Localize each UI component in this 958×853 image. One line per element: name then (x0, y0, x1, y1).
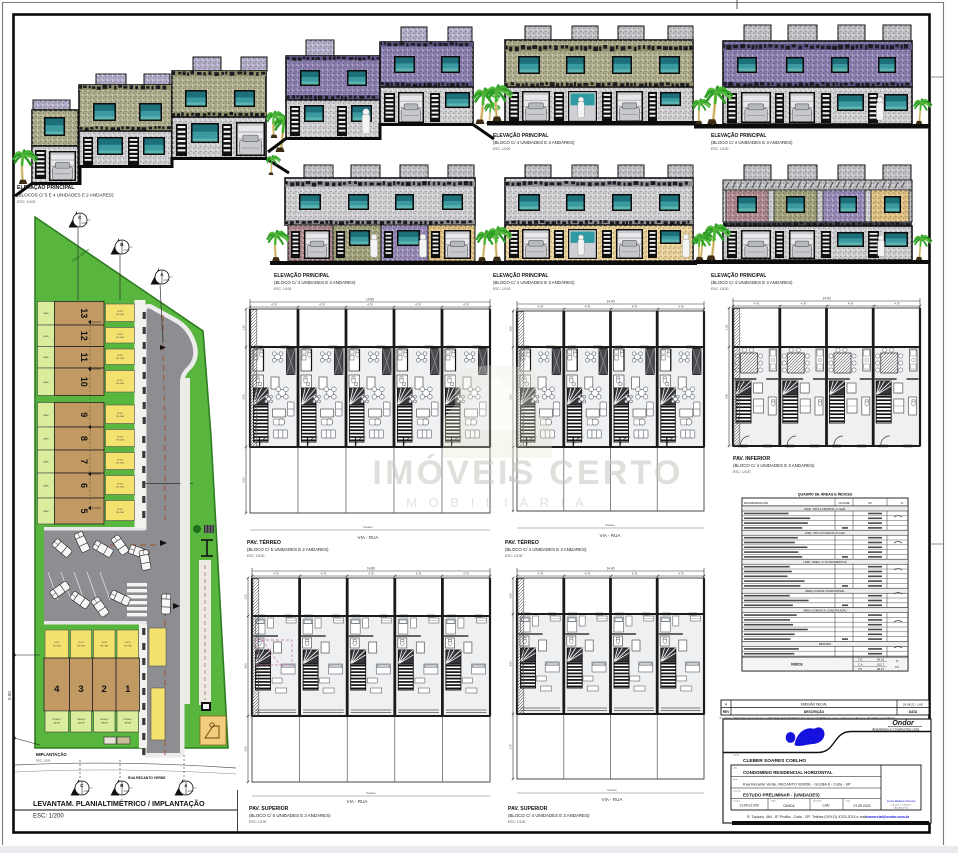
svg-text:1/100: 1/100 (123, 249, 130, 252)
svg-text:SUÍTE: SUÍTE (117, 459, 124, 462)
svg-text:REV: REV (723, 710, 730, 714)
svg-text:EM CIMA: EM CIMA (116, 313, 124, 316)
svg-text:R. Topázio, 464 - B° Profita -: R. Topázio, 464 - B° Profita - Cotia - S… (747, 815, 866, 819)
svg-text:11: 11 (79, 352, 89, 362)
svg-text:TERRAÇO: TERRAÇO (52, 718, 61, 721)
svg-text:EMISSÃO INICIAL: EMISSÃO INICIAL (801, 702, 828, 707)
svg-text:ELEVAÇÃO PRINCIPAL: ELEVAÇÃO PRINCIPAL (274, 272, 329, 279)
svg-text:UNID. TIPO A FRONTAL C/ GAR.: UNID. TIPO A FRONTAL C/ GAR. (804, 507, 846, 511)
svg-text:14.40: 14.40 (823, 297, 831, 301)
svg-text:8: 8 (79, 436, 89, 441)
svg-text:LEVANTAM. PLANIALTIMÉTRICO / I: LEVANTAM. PLANIALTIMÉTRICO / IMPLANTAÇÃO (33, 799, 205, 808)
svg-text:3.00: 3.00 (725, 393, 729, 399)
svg-text:cliente: cliente (733, 754, 740, 757)
svg-text:escalas: escalas (733, 801, 741, 803)
svg-text:TERRAÇO: TERRAÇO (123, 718, 132, 721)
svg-text:comercial@ondor.com.br: comercial@ondor.com.br (866, 815, 910, 819)
svg-text:ÁREA: ÁREA (44, 438, 50, 441)
svg-text:4.70: 4.70 (848, 302, 854, 306)
svg-text:ESC: 1/200: ESC: 1/200 (33, 814, 64, 820)
svg-text:ÁREA COMUM CONDOMINIAL: ÁREA COMUM CONDOMINIAL (805, 589, 845, 593)
svg-text:14.40: 14.40 (607, 300, 615, 304)
svg-text:(BLOCOS C/ 5 E 4 UNIDADES E 2: (BLOCOS C/ 5 E 4 UNIDADES E 2 ANDARES) (17, 193, 114, 198)
svg-text:ÁREA: ÁREA (44, 381, 50, 384)
svg-text:EM CIMA: EM CIMA (100, 645, 108, 648)
svg-text:EM CIMA: EM CIMA (116, 439, 124, 442)
svg-text:26.08.22 - LAD: 26.08.22 - LAD (903, 703, 924, 707)
svg-text:4.70: 4.70 (632, 572, 638, 576)
svg-text:4.70: 4.70 (632, 305, 638, 309)
svg-text:ÍNDICE: ÍNDICE (791, 662, 803, 667)
svg-text:ÁREA: ÁREA (44, 485, 50, 488)
svg-text:VIA - RUA: VIA - RUA (358, 535, 380, 540)
svg-text:TERRAÇO: TERRAÇO (77, 718, 86, 721)
svg-text:4.70: 4.70 (321, 572, 327, 576)
svg-text:1.18: 1.18 (725, 324, 729, 330)
svg-text:EM CIMA: EM CIMA (116, 336, 124, 339)
svg-text:JARDIM: JARDIM (78, 722, 85, 725)
svg-text:6: 6 (79, 483, 89, 488)
svg-text:PAV. TÉRREO: PAV. TÉRREO (247, 538, 281, 546)
svg-text:VIA - RUA: VIA - RUA (600, 533, 622, 538)
svg-text:4.70: 4.70 (585, 572, 591, 576)
svg-text:local: local (733, 779, 738, 781)
svg-text:CLEBER SOARES COELHO: CLEBER SOARES COELHO (743, 758, 806, 764)
svg-text:EM CIMA: EM CIMA (116, 462, 124, 465)
svg-text:4.70: 4.70 (463, 572, 469, 576)
svg-text:EM CIMA: EM CIMA (124, 645, 132, 648)
svg-text:SUÍTE: SUÍTE (54, 641, 61, 644)
svg-text:4.70: 4.70 (678, 572, 684, 576)
svg-text:desenho: desenho (813, 801, 822, 803)
svg-text:M O B I L I Á R I A: M O B I L I Á R I A (406, 495, 588, 510)
svg-text:1:100 e1:200: 1:100 e1:200 (739, 804, 759, 808)
svg-text:ELEVAÇÃO PRINCIPAL: ELEVAÇÃO PRINCIPAL (711, 132, 766, 139)
svg-text:5.00: 5.00 (7, 691, 12, 700)
svg-text:PAV. SUPERIOR: PAV. SUPERIOR (249, 806, 289, 812)
svg-text:EM CIMA: EM CIMA (116, 486, 124, 489)
svg-text:ESC: 1/100: ESC: 1/100 (493, 147, 510, 151)
svg-text:ESC: 1/100: ESC: 1/100 (247, 554, 264, 558)
svg-text:4.70: 4.70 (585, 305, 591, 309)
svg-text:VIA - RUA: VIA - RUA (347, 799, 369, 804)
svg-text:SUÍTE: SUÍTE (117, 333, 124, 336)
svg-text:CAU A25.373-5: CAU A25.373-5 (893, 807, 909, 810)
svg-text:ESC: 1/100: ESC: 1/100 (274, 287, 291, 291)
svg-text:Passeio: Passeio (607, 788, 617, 792)
svg-text:ELEVAÇÃO PRINCIPAL: ELEVAÇÃO PRINCIPAL (493, 272, 548, 279)
svg-text:SUÍTE: SUÍTE (117, 483, 124, 486)
svg-text:ESC: 1/100: ESC: 1/100 (711, 287, 728, 291)
svg-text:EM CIMA: EM CIMA (116, 415, 124, 418)
svg-text:UNID. TIPO A FUNDOS S/ GAR.: UNID. TIPO A FUNDOS S/ GAR. (805, 531, 846, 535)
svg-text:ESC: 1/100: ESC: 1/100 (17, 200, 35, 204)
svg-text:9: 9 (79, 412, 89, 417)
svg-text:PAV. INFERIOR: PAV. INFERIOR (733, 456, 770, 462)
svg-text:ÁREA COMUM S/ CONSTRUÇÃO: ÁREA COMUM S/ CONSTRUÇÃO (803, 607, 847, 612)
svg-text:2.00: 2.00 (242, 477, 246, 483)
svg-text:4.70: 4.70 (416, 572, 422, 576)
svg-text:1/100: 1/100 (83, 790, 90, 793)
svg-text:M²: M² (868, 501, 871, 505)
svg-text:ESC: 1/100: ESC: 1/100 (493, 287, 510, 291)
svg-text:DATA: DATA (909, 710, 918, 714)
svg-text:1/100: 1/100 (81, 222, 88, 225)
svg-text:54.19: 54.19 (877, 658, 884, 662)
svg-text:4.70: 4.70 (319, 303, 325, 307)
svg-text:ESTUDO PRELIMINAR - (UNIDADES): ESTUDO PRELIMINAR - (UNIDADES) (743, 793, 820, 798)
svg-text:(BLOCO C/ 4 UNIDADES E 3 ANDAR: (BLOCO C/ 4 UNIDADES E 3 ANDARES) (274, 280, 356, 285)
svg-text:VIA - RUA: VIA - RUA (602, 797, 624, 802)
svg-text:2: 2 (102, 684, 107, 695)
svg-text:ELEVAÇÃO PRINCIPAL: ELEVAÇÃO PRINCIPAL (17, 184, 75, 191)
svg-text:28.27: 28.27 (877, 667, 884, 671)
svg-text:3.03: 3.03 (242, 394, 246, 400)
svg-text:ÁREA: ÁREA (44, 414, 50, 417)
svg-text:0.6: 0.6 (895, 665, 899, 669)
svg-text:SUÍTE: SUÍTE (125, 641, 132, 644)
svg-text:07.09.2022: 07.09.2022 (854, 804, 871, 808)
svg-text:3: 3 (78, 684, 83, 695)
svg-text:1.15: 1.15 (244, 594, 248, 600)
svg-text:CLASSE: CLASSE (838, 501, 849, 505)
svg-text:ESC: 1/100: ESC: 1/100 (711, 147, 728, 151)
svg-text:ÚNICA: ÚNICA (783, 803, 795, 808)
svg-text:SUÍTE: SUÍTE (117, 379, 124, 382)
svg-text:(BLOCO C/ 4 UNIDADES E 3 ANDAR: (BLOCO C/ 4 UNIDADES E 3 ANDARES) (508, 813, 590, 818)
svg-text:SUÍTE: SUÍTE (117, 412, 124, 415)
svg-text:JARDIM: JARDIM (101, 722, 108, 725)
svg-text:1.09: 1.09 (509, 326, 513, 332)
svg-text:4.70: 4.70 (538, 305, 544, 309)
svg-text:ÁREA: ÁREA (44, 335, 50, 338)
svg-text:EM CIMA: EM CIMA (116, 357, 124, 360)
svg-text:obra: obra (733, 767, 738, 770)
svg-text:DISCRIMINAÇÃO: DISCRIMINAÇÃO (744, 500, 769, 505)
svg-text:TERRAÇO: TERRAÇO (100, 718, 109, 721)
svg-text:SUÍTE: SUÍTE (117, 310, 124, 313)
svg-text:ESC: 1/100: ESC: 1/100 (249, 820, 266, 824)
svg-text:SUÍTE: SUÍTE (117, 436, 124, 439)
svg-text:4.70: 4.70 (367, 303, 373, 307)
svg-text:2.00: 2.00 (244, 746, 248, 752)
svg-text:(BLOCO C/ 4 UNIDADES E 3 ANDAR: (BLOCO C/ 4 UNIDADES E 3 ANDARES) (711, 140, 793, 145)
svg-text:IMPLANTAÇÃO: IMPLANTAÇÃO (36, 752, 67, 757)
svg-text:12: 12 (79, 331, 89, 341)
svg-text:5: 5 (79, 508, 89, 513)
svg-text:4.70: 4.70 (271, 303, 277, 307)
svg-text:1/100: 1/100 (163, 279, 170, 282)
svg-text:1.97: 1.97 (509, 743, 513, 749)
svg-text:13: 13 (79, 308, 89, 318)
svg-text:EM CIMA: EM CIMA (77, 645, 85, 648)
svg-text:14.80: 14.80 (366, 298, 374, 302)
svg-text:(BLOCO C/ 4 UNIDADES E 3 ANDAR: (BLOCO C/ 4 UNIDADES E 3 ANDARES) (493, 140, 575, 145)
svg-text:PAV. SUPERIOR: PAV. SUPERIOR (508, 806, 548, 812)
svg-text:4.70: 4.70 (273, 572, 279, 576)
svg-text:assunto: assunto (733, 790, 741, 793)
svg-text:PAV. TÉRREO: PAV. TÉRREO (505, 538, 539, 546)
svg-text:RUA RECANTO VERDE: RUA RECANTO VERDE (128, 776, 166, 780)
svg-text:(BLOCO C/ 4 UNIDADES E 3 ANDAR: (BLOCO C/ 4 UNIDADES E 3 ANDARES) (505, 547, 587, 552)
svg-text:4.70: 4.70 (894, 302, 900, 306)
svg-text:4.70: 4.70 (538, 572, 544, 576)
svg-text:JARDIM: JARDIM (124, 722, 131, 725)
svg-text:arquiteto e urbanista: arquiteto e urbanista (891, 804, 912, 807)
svg-text:101.7: 101.7 (877, 662, 884, 666)
svg-text:ELEVAÇÃO PRINCIPAL: ELEVAÇÃO PRINCIPAL (711, 272, 766, 279)
svg-text:ESC: 1/100: ESC: 1/100 (508, 820, 525, 824)
svg-text:SUÍTE: SUÍTE (101, 641, 108, 644)
svg-text:Rua Recanto Verde, RECANTO VER: Rua Recanto Verde, RECANTO VERDE - GLEBA… (743, 783, 851, 787)
svg-text:1/100: 1/100 (123, 790, 130, 793)
svg-text:4.70: 4.70 (754, 302, 760, 306)
svg-text:RESUMO: RESUMO (819, 642, 832, 646)
svg-text:1/100: 1/100 (187, 790, 194, 793)
svg-text:3.03: 3.03 (509, 661, 513, 667)
svg-text:10: 10 (79, 377, 89, 387)
svg-text:7: 7 (79, 459, 89, 464)
svg-text:Passeio: Passeio (363, 525, 373, 529)
svg-text:SUÍTE: SUÍTE (117, 508, 124, 511)
svg-text:ÁREA: ÁREA (44, 510, 50, 513)
svg-text:LAD: LAD (823, 804, 830, 808)
svg-text:1.09: 1.09 (509, 593, 513, 599)
svg-text:4.70: 4.70 (678, 305, 684, 309)
svg-text:Ondor: Ondor (892, 718, 915, 727)
svg-text:4.70: 4.70 (415, 303, 421, 307)
svg-text:JARDIM: JARDIM (53, 722, 60, 725)
svg-text:DESCRIÇÃO: DESCRIÇÃO (804, 709, 825, 714)
svg-text:IMÓVEIS CERTO: IMÓVEIS CERTO (372, 454, 683, 492)
svg-text:14.40: 14.40 (607, 567, 615, 571)
svg-text:CONDOMÍNIO RESIDENCIAL HORIZON: CONDOMÍNIO RESIDENCIAL HORIZONTAL (743, 770, 833, 775)
svg-text:EM CIMA: EM CIMA (53, 645, 61, 648)
svg-text:ELEVAÇÃO PRINCIPAL: ELEVAÇÃO PRINCIPAL (493, 132, 548, 139)
svg-text:B: B (120, 242, 123, 247)
svg-text:ÁREA: ÁREA (44, 312, 50, 315)
svg-text:UNID. PRED. C/ 03 PAVIMENTOS: UNID. PRED. C/ 03 PAVIMENTOS (803, 560, 846, 564)
svg-text:(BLOCO C/ 5 UNIDADES E 2 ANDAR: (BLOCO C/ 5 UNIDADES E 2 ANDARES) (247, 547, 329, 552)
svg-text:(BLOCO C/ 4 UNIDADES E 3 ANDAR: (BLOCO C/ 4 UNIDADES E 3 ANDARES) (733, 463, 815, 468)
svg-text:B: B (120, 783, 123, 788)
svg-text:(BLOCO C/ 4 UNIDADES E 3 ANDAR: (BLOCO C/ 4 UNIDADES E 3 ANDARES) (493, 280, 575, 285)
svg-text:1.15: 1.15 (242, 325, 246, 331)
svg-text:folha: folha (771, 801, 777, 803)
svg-text:ESC: 1/100: ESC: 1/100 (733, 470, 750, 474)
svg-text:4.70: 4.70 (368, 572, 374, 576)
svg-text:Lucia Makaré Pereira: Lucia Makaré Pereira (887, 799, 916, 803)
svg-text:3.03: 3.03 (244, 663, 248, 669)
svg-text:C.A: C.A (858, 662, 863, 666)
svg-text:QUADRO DE ÁREAS E ÍNDICES: QUADRO DE ÁREAS E ÍNDICES (798, 492, 853, 497)
svg-text:ÁREA: ÁREA (44, 461, 50, 464)
svg-text:Passeio: Passeio (366, 791, 376, 795)
svg-text:Passeio: Passeio (605, 523, 615, 527)
svg-text:1: 1 (125, 684, 131, 695)
svg-text:SUÍTE: SUÍTE (78, 641, 85, 644)
svg-text:4.70: 4.70 (463, 303, 469, 307)
svg-text:ESC: 1/100: ESC: 1/100 (505, 554, 522, 558)
svg-text:(BLOCO C/ 5 UNIDADES E 2 ANDAR: (BLOCO C/ 5 UNIDADES E 2 ANDARES) (249, 813, 331, 818)
svg-text:T.P: T.P (858, 667, 862, 671)
svg-text:(BLOCO C/ 4 UNIDADES E 3 ANDAR: (BLOCO C/ 4 UNIDADES E 3 ANDARES) (711, 280, 793, 285)
svg-text:4: 4 (54, 684, 60, 695)
svg-text:4.70: 4.70 (801, 302, 807, 306)
svg-text:ESC: 1/200: ESC: 1/200 (36, 759, 51, 763)
svg-text:SUÍTE: SUÍTE (117, 354, 124, 357)
svg-text:ÁREA: ÁREA (44, 356, 50, 359)
svg-text:EM CIMA: EM CIMA (116, 382, 124, 385)
svg-text:EM CIMA: EM CIMA (116, 511, 124, 514)
svg-text:14.80: 14.80 (367, 567, 375, 571)
